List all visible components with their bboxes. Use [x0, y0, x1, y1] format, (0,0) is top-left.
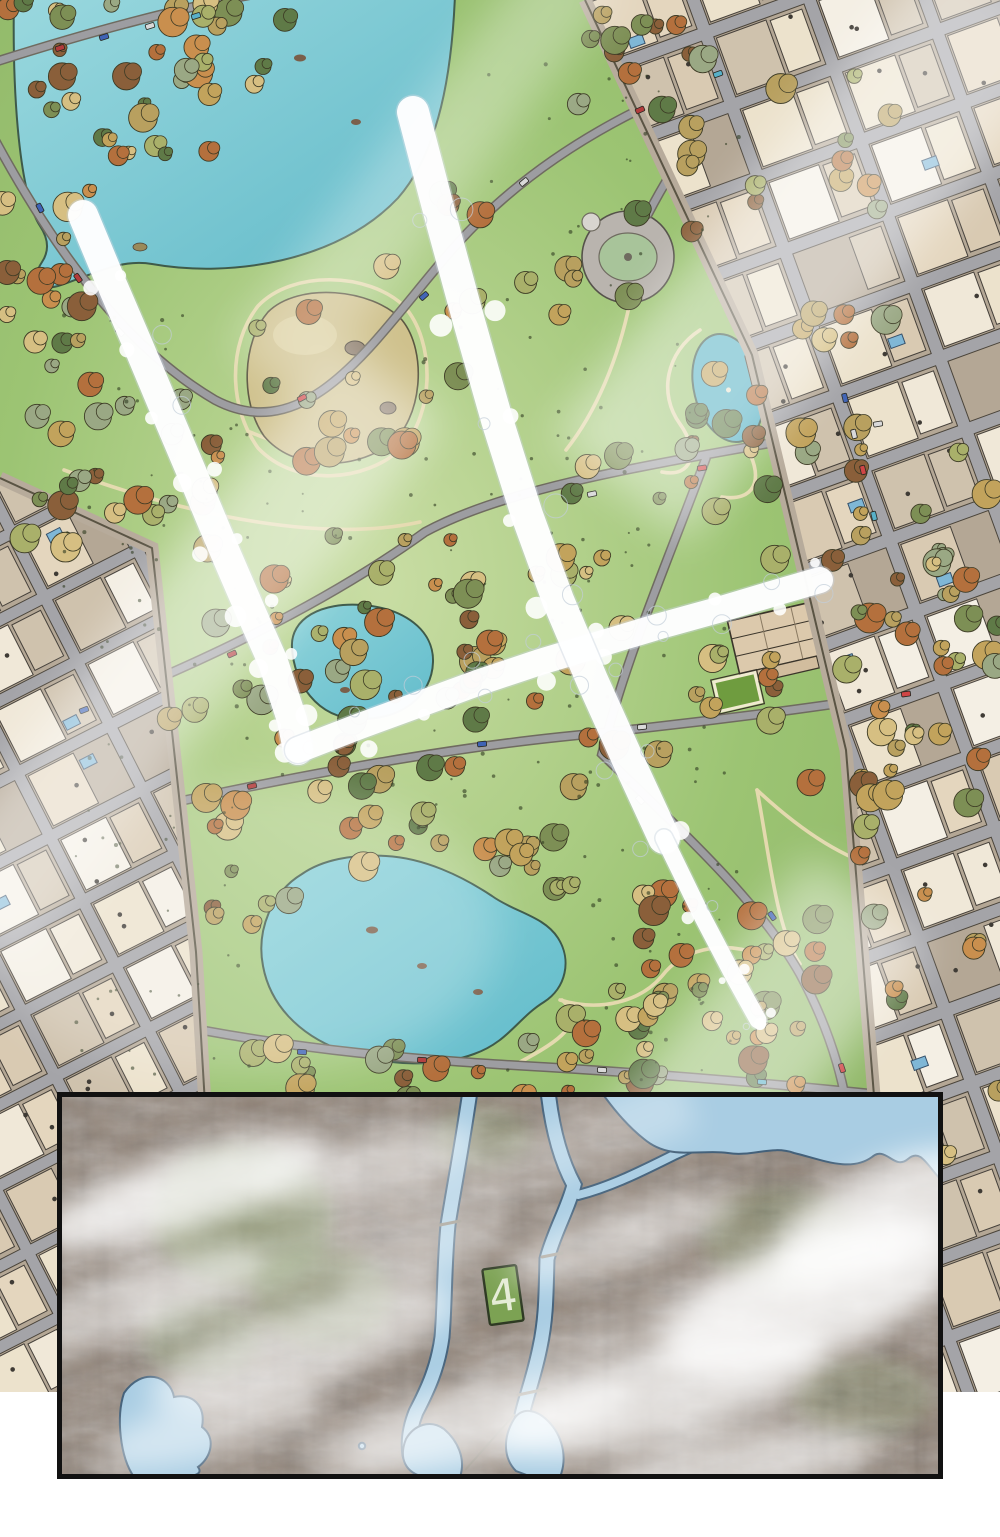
tree — [773, 546, 790, 563]
speckle — [530, 457, 533, 460]
tree — [585, 1050, 594, 1059]
tree — [858, 605, 867, 614]
speckle — [63, 550, 66, 553]
speckle — [481, 752, 485, 756]
tree — [363, 601, 371, 609]
speckle — [122, 543, 124, 545]
cloud-puff — [296, 704, 318, 726]
tree — [352, 639, 369, 656]
cloud-puff — [503, 514, 516, 527]
tree — [468, 611, 479, 622]
tree — [653, 994, 667, 1008]
speckle — [690, 987, 693, 990]
cloud-puff — [207, 462, 222, 477]
speckle — [181, 314, 184, 317]
speckle — [245, 737, 248, 740]
tree — [520, 843, 534, 857]
tree — [195, 35, 210, 50]
tree — [185, 59, 200, 74]
tree — [628, 63, 642, 77]
speckle — [136, 399, 139, 402]
speckle — [462, 789, 466, 793]
speckle — [450, 549, 452, 551]
tree — [117, 146, 129, 158]
car — [901, 691, 911, 697]
tree — [202, 6, 216, 20]
cloud-puff — [145, 412, 158, 425]
tree — [59, 264, 72, 277]
car — [417, 1057, 426, 1062]
speckle — [529, 336, 532, 339]
speckle — [587, 580, 590, 583]
tree — [848, 332, 858, 342]
tree — [966, 789, 984, 807]
speckle — [626, 158, 628, 160]
tree — [216, 17, 227, 28]
tree — [584, 1020, 601, 1037]
tree — [845, 656, 862, 673]
speckle — [605, 1006, 608, 1009]
tree — [879, 719, 896, 736]
cloud-puff — [429, 314, 452, 337]
speckle — [435, 803, 438, 806]
tree — [831, 550, 845, 564]
tree — [227, 0, 244, 16]
tree — [202, 53, 213, 64]
speckle — [701, 228, 704, 231]
speckle — [557, 410, 561, 414]
tree — [552, 824, 569, 841]
speckle — [643, 132, 647, 136]
cloud-puff — [115, 270, 126, 281]
speckle — [735, 870, 738, 873]
speckle — [647, 891, 651, 895]
speckle — [725, 143, 727, 145]
tree — [108, 133, 117, 142]
speckle — [707, 215, 709, 217]
tree — [570, 877, 581, 888]
speckle — [450, 778, 452, 780]
speckle — [131, 551, 134, 554]
tree — [686, 155, 699, 168]
tree — [635, 201, 651, 217]
tree — [217, 451, 225, 459]
cloud-puff — [418, 709, 430, 721]
tree — [642, 928, 655, 941]
speckle — [607, 77, 610, 80]
tree — [110, 0, 119, 7]
speckle — [433, 729, 435, 731]
tree — [477, 1065, 485, 1073]
speckle — [463, 794, 467, 798]
tree — [488, 630, 504, 646]
tree — [527, 1033, 539, 1045]
speckle — [643, 746, 646, 749]
speckle — [630, 564, 633, 567]
speckle — [506, 298, 509, 301]
cloud-puff — [119, 342, 134, 357]
speckle — [153, 1073, 156, 1076]
speckle — [281, 773, 284, 776]
speckle — [677, 933, 680, 936]
tree — [377, 609, 395, 627]
tree — [434, 578, 442, 586]
tree — [860, 527, 872, 539]
tree — [36, 81, 46, 91]
speckle — [235, 424, 238, 427]
speckle — [716, 863, 719, 866]
speckle — [649, 950, 652, 953]
speckle — [537, 761, 540, 764]
speckle — [622, 100, 624, 102]
speckle — [492, 774, 496, 778]
speckle — [583, 368, 587, 372]
tree — [164, 147, 172, 155]
tree — [36, 405, 51, 420]
tree — [652, 896, 671, 915]
speckle — [597, 898, 601, 902]
tree — [241, 680, 252, 691]
tree — [51, 359, 60, 368]
tree — [558, 305, 571, 318]
tree — [50, 291, 61, 302]
tree — [613, 27, 630, 44]
tree — [568, 1005, 585, 1022]
tree — [616, 983, 626, 993]
speckle — [662, 654, 666, 658]
tree — [945, 1146, 957, 1158]
speckle — [568, 704, 572, 708]
tree — [51, 102, 61, 112]
speckle — [577, 795, 581, 799]
tree — [855, 415, 871, 431]
tree — [640, 15, 653, 28]
tree — [474, 707, 490, 723]
tree — [890, 764, 898, 772]
tree — [434, 1056, 450, 1072]
tree — [454, 757, 466, 769]
speckle — [164, 348, 167, 351]
tree — [701, 46, 718, 63]
speckle — [155, 558, 158, 561]
tree — [402, 1070, 413, 1081]
tree — [689, 116, 704, 131]
cloud-puff — [360, 740, 377, 757]
speckle — [722, 627, 726, 631]
tree — [601, 550, 611, 560]
tree — [972, 937, 986, 951]
speckle — [628, 532, 630, 534]
cloud-puff — [503, 408, 519, 424]
tree — [860, 507, 869, 516]
speckle — [507, 698, 509, 700]
cloud-puff — [708, 593, 721, 606]
tree — [167, 496, 178, 507]
speckle — [621, 849, 624, 852]
tree — [60, 63, 77, 80]
tree — [88, 184, 96, 192]
tree — [884, 306, 902, 324]
speckle — [584, 780, 588, 784]
speckle — [536, 837, 538, 839]
tree — [627, 283, 644, 300]
tree — [770, 652, 781, 663]
car — [597, 1067, 606, 1073]
speckle — [583, 855, 586, 858]
tree — [695, 687, 705, 697]
tree — [938, 723, 952, 737]
speckle — [645, 75, 647, 77]
tree — [964, 567, 980, 583]
tree — [337, 756, 350, 769]
high-altitude-view: 4 — [62, 1097, 938, 1474]
speckle — [708, 888, 710, 890]
tree — [64, 533, 82, 551]
tree — [913, 727, 924, 738]
tree — [680, 944, 695, 959]
tree — [524, 272, 538, 286]
speckle — [423, 357, 427, 361]
tree — [766, 476, 783, 493]
tree — [864, 815, 879, 830]
speckle — [583, 1020, 585, 1022]
tree — [799, 418, 817, 436]
speckle — [433, 504, 436, 507]
speckle — [229, 427, 232, 430]
cloud-puff — [173, 474, 192, 493]
tree — [644, 1042, 654, 1052]
speckle — [131, 1066, 135, 1070]
car — [873, 421, 883, 427]
tree — [769, 707, 786, 724]
tree — [955, 653, 966, 664]
tree — [709, 697, 722, 710]
tree — [96, 403, 113, 420]
tree — [428, 755, 444, 771]
speckle — [658, 90, 660, 92]
speckle — [718, 919, 720, 921]
speckle — [484, 583, 486, 585]
cloud-puff — [537, 672, 556, 691]
tree — [585, 567, 593, 575]
tree — [62, 232, 70, 240]
cloud-puff — [285, 648, 297, 660]
tree — [577, 94, 590, 107]
speckle — [472, 452, 476, 456]
speckle — [565, 457, 568, 460]
cloud-puff — [810, 558, 820, 568]
tree — [940, 641, 950, 651]
tree — [70, 93, 81, 104]
speckle — [117, 387, 120, 390]
speckle — [658, 747, 661, 750]
tree — [906, 622, 921, 637]
speckle — [541, 841, 544, 844]
tree — [896, 573, 904, 581]
tree — [1, 192, 16, 207]
speckle — [124, 400, 128, 404]
speckle — [521, 414, 524, 417]
car — [477, 741, 486, 747]
tree — [690, 221, 703, 234]
tree — [284, 9, 298, 23]
speckle — [611, 937, 615, 941]
tree — [78, 470, 92, 484]
speckle — [548, 117, 551, 120]
cloud-puff — [682, 912, 695, 925]
tree — [77, 334, 86, 343]
speckle — [66, 531, 68, 533]
speckle — [577, 225, 580, 228]
speckle — [625, 96, 627, 98]
tree — [895, 740, 905, 750]
tree — [208, 142, 220, 154]
tree — [94, 469, 104, 479]
tree — [718, 646, 729, 657]
speckle — [614, 963, 618, 967]
tree — [136, 486, 154, 504]
tree — [67, 477, 78, 488]
tree — [39, 492, 48, 501]
tree — [859, 847, 870, 858]
cloud-puff — [269, 719, 281, 731]
speckle — [490, 180, 493, 183]
speckle — [625, 551, 627, 553]
speckle — [506, 1068, 509, 1071]
speckle — [519, 806, 523, 810]
tree — [171, 8, 189, 26]
tree — [534, 693, 544, 703]
tree — [179, 389, 192, 402]
tree — [141, 104, 159, 122]
speckle — [695, 767, 699, 771]
speckle — [589, 770, 592, 773]
tree — [654, 19, 663, 28]
speckle — [63, 585, 66, 588]
tree — [208, 84, 222, 98]
speckle — [93, 469, 95, 471]
speckle — [162, 524, 165, 527]
tree — [360, 773, 376, 789]
tree — [156, 45, 166, 55]
tree — [253, 76, 264, 87]
speckle — [620, 208, 622, 210]
speckle — [581, 538, 584, 541]
cloud-puff — [526, 597, 548, 619]
cloud-puff — [83, 280, 98, 295]
tree — [152, 505, 165, 518]
tree — [421, 802, 436, 817]
speckle — [639, 252, 642, 255]
speckle — [245, 433, 248, 436]
speckle — [629, 160, 631, 162]
tree — [89, 373, 104, 388]
tree — [378, 766, 395, 783]
tree — [59, 421, 75, 437]
speckle — [551, 252, 555, 256]
speckle — [87, 506, 91, 510]
tree — [919, 504, 931, 516]
tree — [572, 270, 583, 281]
tree — [942, 657, 954, 669]
tree — [932, 557, 941, 566]
tree — [886, 781, 905, 800]
cloud-puff — [484, 300, 505, 321]
speckle — [160, 318, 164, 322]
tree — [977, 748, 991, 762]
speckle — [129, 546, 133, 550]
car — [637, 724, 646, 730]
tree — [531, 860, 540, 869]
tree — [860, 444, 868, 452]
speckle — [694, 780, 697, 783]
tree — [466, 580, 484, 598]
speckle — [591, 903, 595, 907]
speckle — [424, 457, 428, 461]
speckle — [235, 704, 239, 708]
speckle — [702, 725, 705, 728]
speckle — [82, 530, 86, 534]
speckle — [575, 694, 579, 698]
tree — [298, 1074, 316, 1092]
tree — [892, 612, 902, 622]
tree — [125, 63, 142, 80]
tree — [379, 561, 394, 576]
inset-panel: 4 — [57, 1092, 943, 1479]
speckle — [610, 284, 612, 286]
tree — [6, 261, 21, 276]
tree — [363, 670, 381, 688]
speckle — [636, 527, 640, 531]
speckle — [391, 783, 395, 787]
tree — [779, 74, 798, 93]
tree — [262, 59, 272, 69]
tree — [809, 770, 825, 786]
tree — [879, 701, 890, 712]
tree — [6, 307, 16, 317]
tree — [449, 534, 457, 542]
tree — [675, 16, 687, 28]
tree — [425, 390, 433, 398]
speckle — [62, 313, 66, 317]
tree — [868, 604, 887, 623]
speckle — [151, 474, 153, 476]
tree — [210, 435, 222, 447]
comic-page: { "page": { "background_color": "#ffffff… — [0, 0, 1000, 1537]
tree — [566, 1053, 578, 1065]
tree — [299, 670, 314, 685]
speckle — [569, 230, 573, 234]
speckle — [688, 748, 692, 752]
speckle — [737, 135, 741, 139]
tree — [985, 480, 1000, 498]
plaza-small-circle — [582, 213, 600, 231]
tree — [957, 443, 968, 454]
tree — [61, 5, 76, 20]
tree — [966, 605, 983, 622]
cloud-puff — [773, 603, 786, 616]
tree — [23, 524, 41, 542]
tree — [660, 97, 676, 113]
tree — [318, 626, 328, 636]
tree — [767, 668, 779, 680]
tree — [589, 31, 600, 42]
speckle — [723, 771, 726, 774]
tree — [479, 202, 495, 218]
speckle — [649, 1030, 653, 1034]
speckle — [647, 543, 650, 546]
tree — [650, 960, 661, 971]
